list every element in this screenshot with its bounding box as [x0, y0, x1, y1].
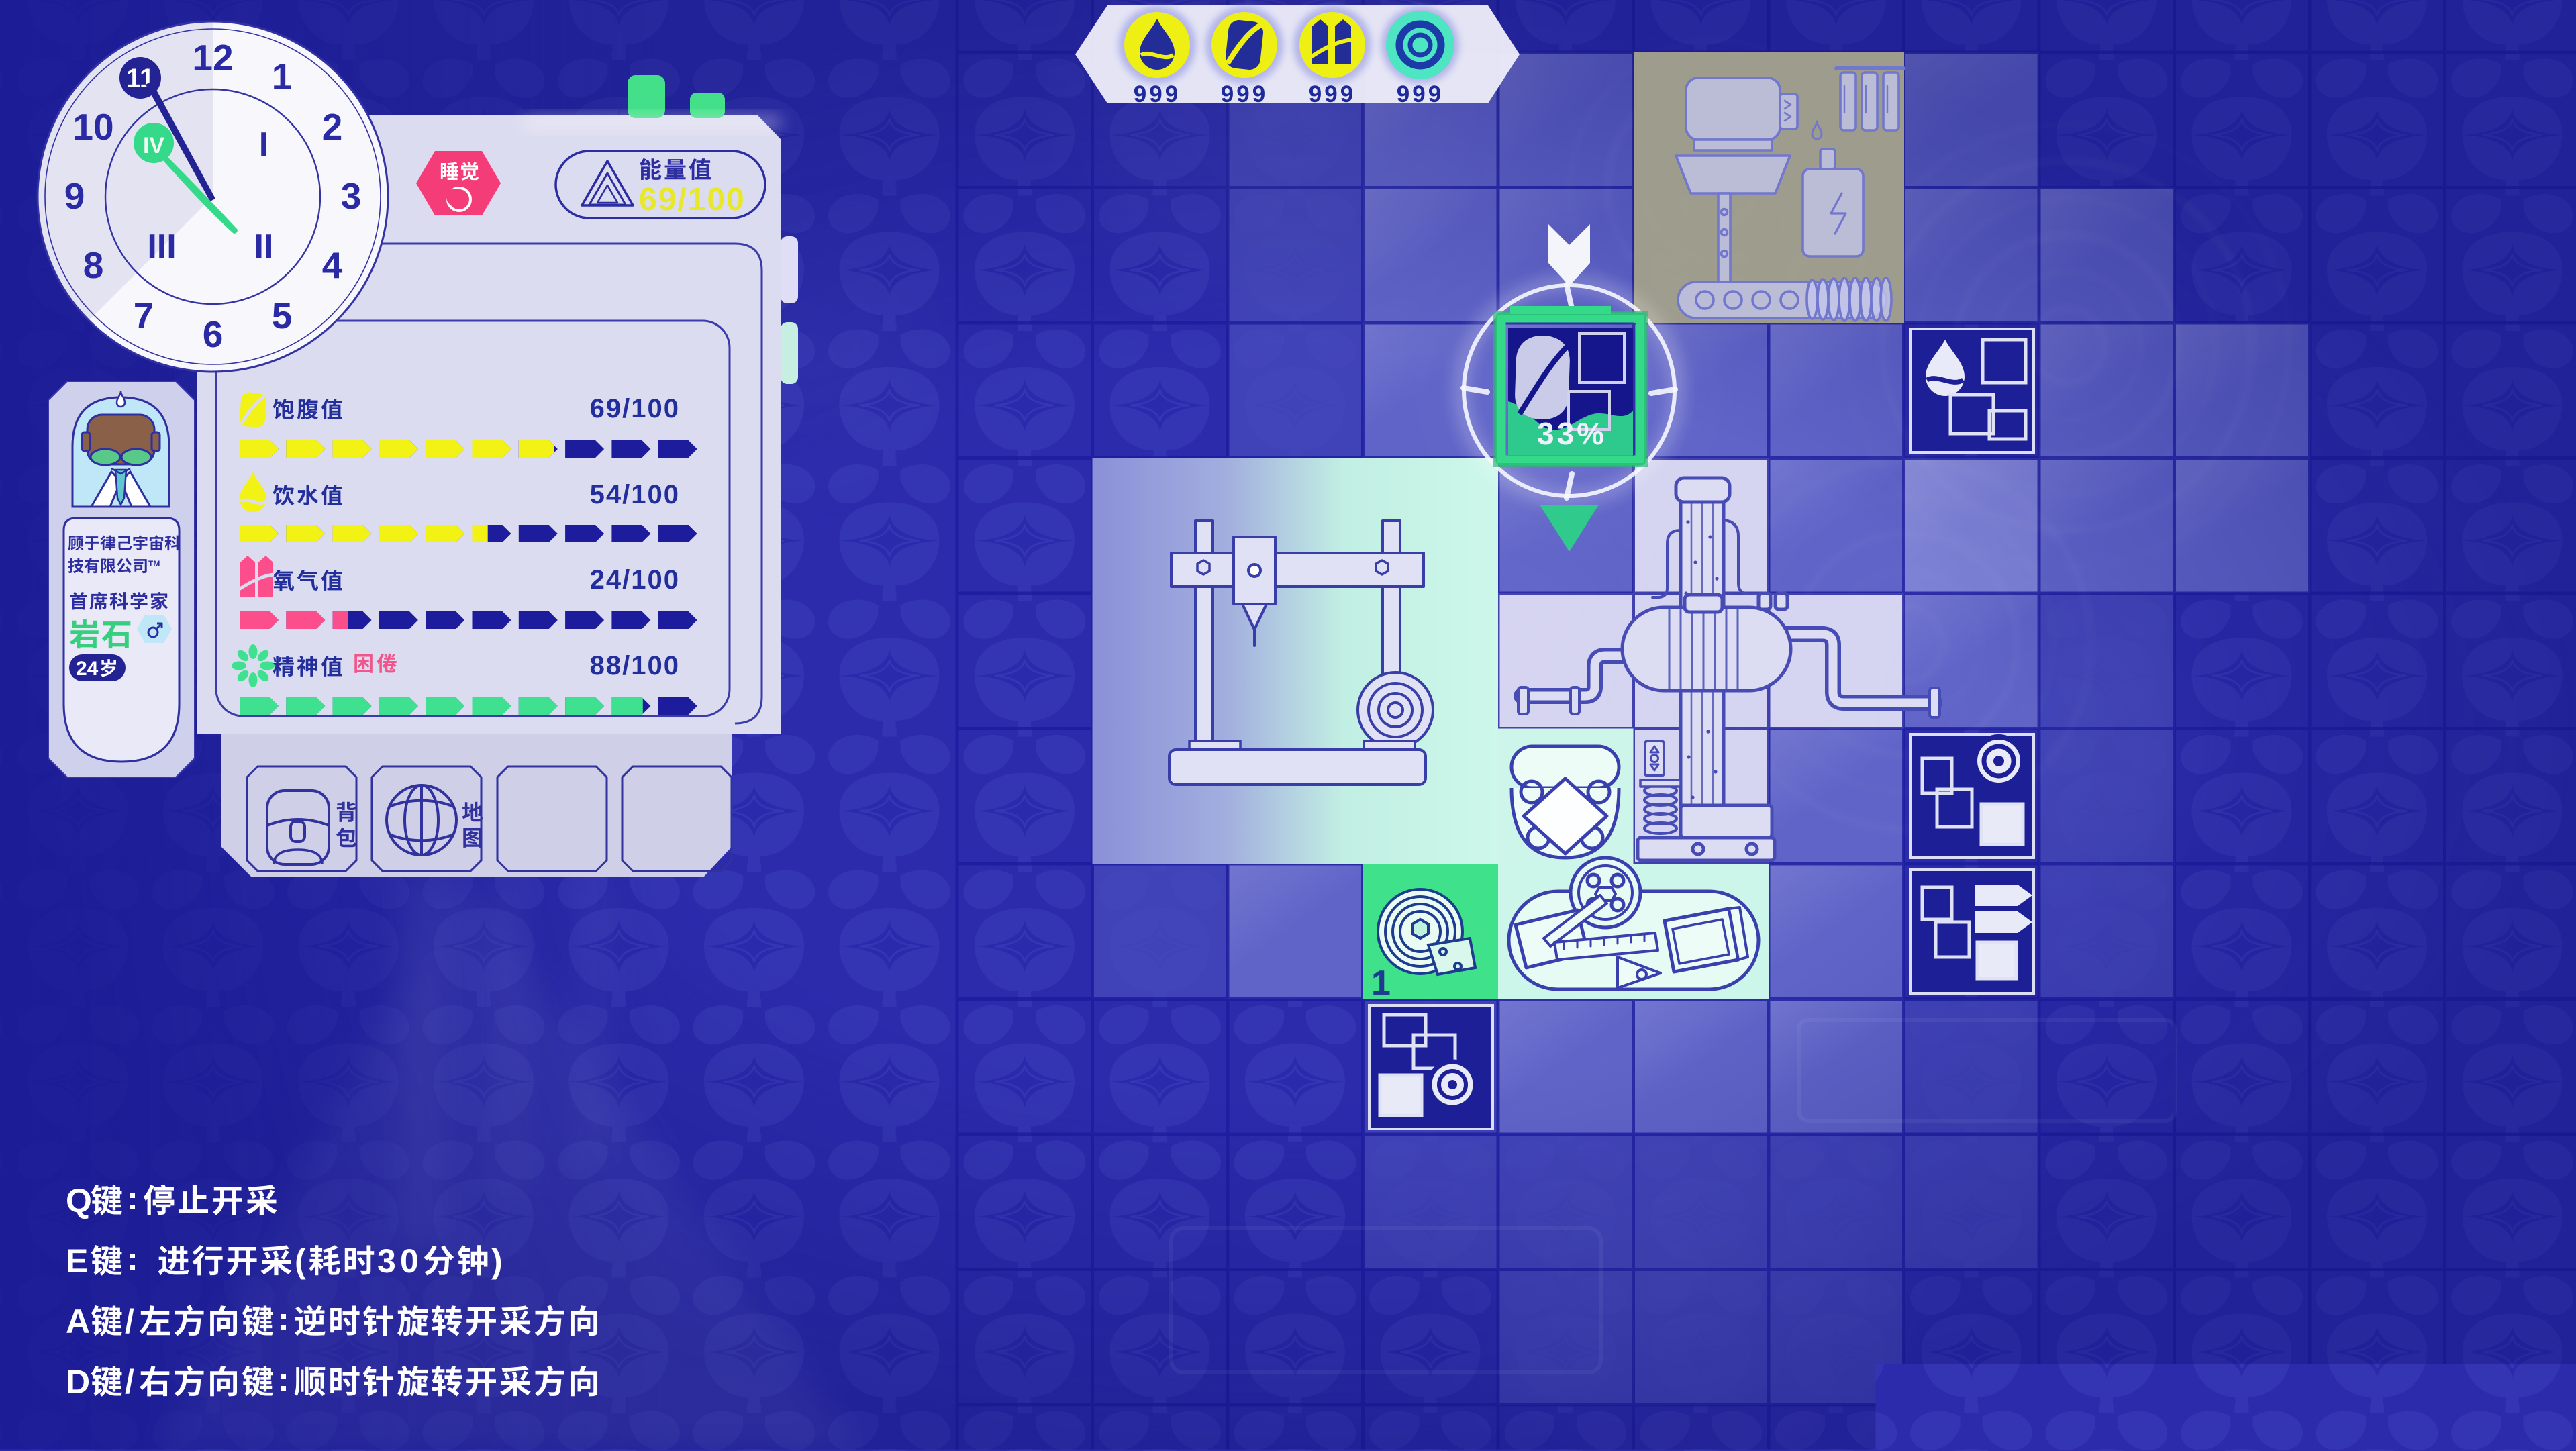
svg-text:3: 3	[341, 175, 362, 217]
svg-text:69/100: 69/100	[639, 182, 746, 217]
svg-text:33%: 33%	[1537, 416, 1607, 451]
svg-text:1: 1	[1371, 964, 1391, 1003]
svg-text:10: 10	[72, 106, 113, 148]
svg-text:999: 999	[1309, 81, 1356, 107]
svg-text:TM: TM	[148, 559, 160, 568]
svg-text:69/100: 69/100	[590, 394, 680, 423]
svg-text:/: /	[125, 1303, 134, 1340]
svg-text:0: 0	[400, 1242, 419, 1280]
svg-text:24/100: 24/100	[590, 565, 680, 595]
svg-text:999: 999	[1221, 81, 1268, 107]
svg-text:III: III	[147, 228, 176, 266]
svg-text:/: /	[125, 1363, 134, 1401]
svg-text:88/100: 88/100	[590, 651, 680, 681]
svg-text:3: 3	[377, 1242, 396, 1280]
svg-text:7: 7	[134, 295, 154, 336]
svg-text:1: 1	[272, 56, 293, 97]
svg-text:E: E	[66, 1242, 88, 1280]
svg-text:8: 8	[83, 244, 104, 286]
svg-text:54/100: 54/100	[590, 480, 680, 509]
svg-text:IV: IV	[143, 133, 164, 158]
svg-text:12: 12	[192, 37, 233, 79]
svg-text:D: D	[66, 1363, 90, 1401]
svg-text:I: I	[259, 126, 268, 164]
svg-text:24: 24	[76, 658, 99, 680]
svg-text:999: 999	[1134, 81, 1181, 107]
svg-text:(: (	[295, 1242, 306, 1280]
svg-text:9: 9	[64, 175, 85, 217]
svg-text:Q: Q	[66, 1182, 92, 1219]
svg-text:999: 999	[1397, 81, 1444, 107]
svg-text:A: A	[66, 1303, 90, 1340]
svg-text:4: 4	[322, 244, 343, 286]
svg-text:6: 6	[203, 313, 224, 355]
svg-text:II: II	[254, 228, 274, 266]
svg-text:): )	[491, 1242, 503, 1280]
svg-text:2: 2	[322, 106, 343, 148]
svg-text:5: 5	[272, 295, 293, 336]
